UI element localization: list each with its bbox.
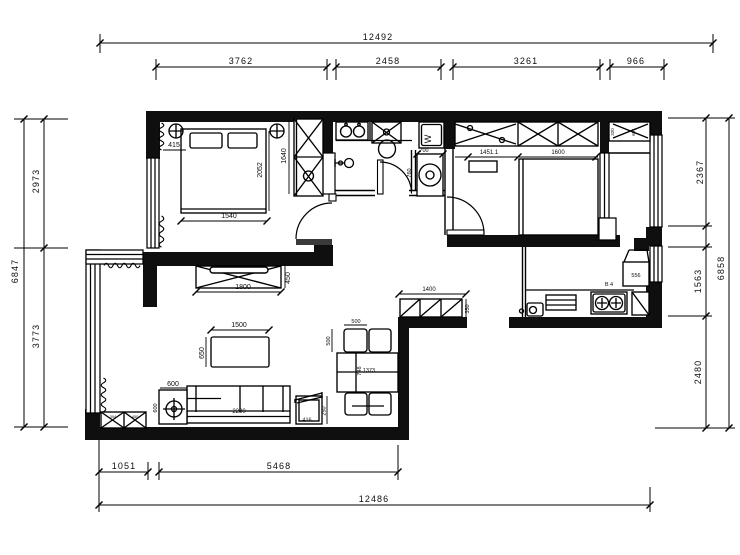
svg-text:1051: 1051 xyxy=(112,461,136,471)
svg-text:320: 320 xyxy=(610,128,615,136)
svg-text:760: 760 xyxy=(407,168,413,177)
svg-text:500: 500 xyxy=(351,319,360,325)
svg-text:2230: 2230 xyxy=(232,409,246,415)
svg-text:3762: 3762 xyxy=(229,56,253,66)
svg-text:1373: 1373 xyxy=(363,368,375,374)
svg-text:250: 250 xyxy=(322,406,328,415)
svg-text:2458: 2458 xyxy=(376,56,400,66)
svg-text:2480: 2480 xyxy=(693,360,703,384)
svg-text:12492: 12492 xyxy=(363,32,394,42)
svg-text:450: 450 xyxy=(285,272,292,284)
svg-text:500: 500 xyxy=(326,336,332,345)
svg-text:3261: 3261 xyxy=(514,56,538,66)
svg-text:650: 650 xyxy=(199,347,206,359)
svg-text:304: 304 xyxy=(110,414,117,419)
svg-text:1540: 1540 xyxy=(221,213,237,220)
svg-text:601: 601 xyxy=(631,128,636,136)
svg-text:556: 556 xyxy=(631,273,640,279)
svg-text:416: 416 xyxy=(302,418,311,424)
svg-text:600: 600 xyxy=(167,381,179,388)
svg-text:700: 700 xyxy=(419,148,428,154)
svg-text:6858: 6858 xyxy=(716,256,726,280)
svg-text:12486: 12486 xyxy=(359,494,390,504)
svg-text:1800: 1800 xyxy=(235,284,251,291)
svg-text:1451.1: 1451.1 xyxy=(480,150,499,156)
svg-text:2973: 2973 xyxy=(31,169,41,193)
svg-text:1400: 1400 xyxy=(422,287,436,293)
svg-text:350: 350 xyxy=(465,304,471,313)
svg-text:966: 966 xyxy=(627,56,645,66)
svg-text:600: 600 xyxy=(153,403,159,412)
svg-text:5468: 5468 xyxy=(267,461,291,471)
svg-text:B 4: B 4 xyxy=(605,282,613,288)
svg-text:6847: 6847 xyxy=(10,259,20,283)
svg-text:1600: 1600 xyxy=(551,150,565,156)
svg-text:450: 450 xyxy=(132,414,139,419)
svg-text:2052: 2052 xyxy=(257,162,264,178)
svg-text:415: 415 xyxy=(168,142,180,149)
svg-text:1563: 1563 xyxy=(693,269,703,293)
svg-text:3773: 3773 xyxy=(31,324,41,348)
svg-text:2367: 2367 xyxy=(695,160,705,184)
svg-text:W: W xyxy=(423,134,433,143)
svg-text:1500: 1500 xyxy=(231,322,247,329)
svg-text:1640: 1640 xyxy=(281,148,288,164)
svg-text:748: 748 xyxy=(357,366,363,375)
